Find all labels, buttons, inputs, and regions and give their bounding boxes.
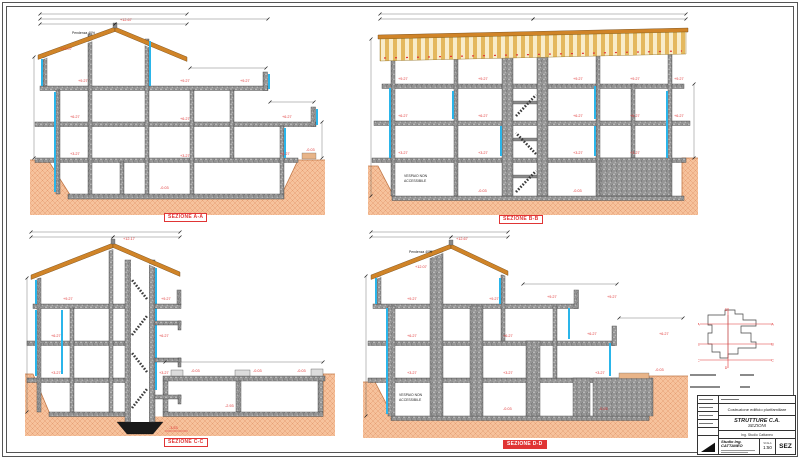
elevation-label: +9.27 xyxy=(161,297,171,301)
key-plan-legend-line xyxy=(690,374,716,376)
section-mark-letter: A xyxy=(771,323,774,327)
elevation-label: -0.03 xyxy=(297,369,306,373)
elevation-label: +3.27 xyxy=(630,151,640,155)
gravel-strip xyxy=(619,373,649,379)
annotation-text: ACCESSIBILE xyxy=(399,398,422,402)
section-d-drawing: +12.67+12.07+9.27+9.27+9.27+9.27+6.27+6.… xyxy=(363,226,688,452)
elevation-label: +3.27 xyxy=(573,151,583,155)
section-d-label: SEZIONE D-D xyxy=(503,440,547,449)
elevation-label: +12.67 xyxy=(120,18,132,22)
firm-row: Ing. Studio Cattaneo xyxy=(719,431,795,439)
elevation-label: +9.27 xyxy=(630,77,640,81)
elevation-label: +3.27 xyxy=(398,151,408,155)
elevation-label: +3.27 xyxy=(70,152,80,156)
elevation-label: -3.53 xyxy=(169,426,178,430)
elevation-label: -0.03 xyxy=(599,407,608,411)
drawing-subtitle: SEZIONI xyxy=(748,424,766,429)
elevation-label: +9.27 xyxy=(674,77,684,81)
title-block-header-row xyxy=(719,396,795,404)
elevation-label: +3.27 xyxy=(180,154,190,158)
section-c-drawing: +12.17+9.27+9.27+6.27+6.27+3.27+3.27-0.0… xyxy=(25,226,335,452)
elevation-label: +6.27 xyxy=(674,114,684,118)
elevation-label: +3.27 xyxy=(407,371,417,375)
elevation-label: -0.03 xyxy=(306,148,315,152)
scale-value: 1:50 xyxy=(763,445,772,450)
elevation-label: +6.27 xyxy=(159,334,169,338)
key-plan-outline xyxy=(708,310,756,358)
elevation-label: +9.27 xyxy=(607,295,617,299)
annotation-text: VESPAIO NON xyxy=(404,174,428,178)
section-mark-letter: D xyxy=(725,366,728,370)
elevation-label: +6.27 xyxy=(70,115,80,119)
elevation-label: +6.27 xyxy=(503,334,513,338)
elevation-label: +6.27 xyxy=(573,114,583,118)
annotation-text: Pendenza 40% xyxy=(72,31,95,35)
elevation-label: +6.27 xyxy=(478,114,488,118)
section-a-label: SEZIONE A-A xyxy=(164,213,207,222)
section-mark-letter: B xyxy=(771,343,774,347)
elevation-label: +9.27 xyxy=(573,77,583,81)
elevation-label: -0.03 xyxy=(160,186,169,190)
elevation-label: -0.03 xyxy=(503,407,512,411)
section-mark-letter: A xyxy=(698,323,700,327)
elevation-label: +9.27 xyxy=(240,79,250,83)
drawing-title-cell: STRUTTURE C.A. SEZIONI xyxy=(719,416,795,431)
roof-left-slope xyxy=(31,243,113,280)
gravel-strip xyxy=(302,153,316,159)
elevation-label: +3.27 xyxy=(595,371,605,375)
elevation-label: +6.27 xyxy=(407,334,417,338)
elevation-label: +6.27 xyxy=(630,114,640,118)
firm-cell: Studio Ing. CATTANEO xyxy=(719,439,760,454)
ridge-cap xyxy=(111,239,115,244)
section-mark-letter: C xyxy=(771,359,774,363)
elevation-label: +9.27 xyxy=(398,77,408,81)
elevation-label: +9.27 xyxy=(407,297,417,301)
elevation-label: -0.03 xyxy=(655,368,664,372)
key-plan: AABBCCDD xyxy=(698,306,774,370)
title-block: Costruzione edificio plurifamiliare STRU… xyxy=(697,395,796,455)
key-plan-legend-line xyxy=(740,374,754,376)
ridge-cap xyxy=(449,240,453,245)
elevation-label: +12.07 xyxy=(60,47,72,51)
section-b-label: SEZIONE B-B xyxy=(499,215,543,224)
elevation-label: -0.03 xyxy=(253,369,262,373)
elevation-label: +3.27 xyxy=(159,371,169,375)
elevation-label: +6.27 xyxy=(659,332,669,336)
elevation-label: -0.03 xyxy=(191,369,200,373)
section-a-drawing: +12.67+12.07+9.27+9.27+9.27+6.27+6.27+6.… xyxy=(30,8,325,223)
elevation-label: +9.27 xyxy=(63,297,73,301)
elevation-label: +12.67 xyxy=(456,237,468,241)
elevation-label: +3.27 xyxy=(51,371,61,375)
section-c-label: SEZIONE C-C xyxy=(164,438,208,447)
triangle-logo-icon xyxy=(701,441,715,452)
project-name: Costruzione edificio plurifamiliare xyxy=(719,404,795,416)
roof-right-slope xyxy=(451,244,508,276)
elevation-label: +9.27 xyxy=(78,79,88,83)
elevation-label: +12.17 xyxy=(123,237,135,241)
section-mark-letter: B xyxy=(698,343,700,347)
scale-cell: SCALA 1:50 xyxy=(760,439,776,454)
elevation-label: +6.27 xyxy=(587,332,597,336)
firm-logo xyxy=(698,436,718,454)
section-b-drawing: +9.27+9.27+9.27+9.27+9.27+6.27+6.27+6.27… xyxy=(368,8,698,223)
elevation-label: +6.27 xyxy=(51,334,61,338)
elevation-label: +6.27 xyxy=(398,114,408,118)
elevation-label: +9.27 xyxy=(489,297,499,301)
elevation-label: -0.03 xyxy=(573,189,582,193)
key-plan-legend-line xyxy=(740,386,750,388)
drawing-code: SEZ xyxy=(776,439,795,454)
stairs xyxy=(513,95,537,192)
elevation-label: +6.27 xyxy=(180,117,190,121)
elevation-label: -0.03 xyxy=(478,189,487,193)
drawing-sheet: +12.67+12.07+9.27+9.27+9.27+6.27+6.27+6.… xyxy=(0,0,800,459)
elevation-label: -2.93 xyxy=(225,404,234,408)
annotation-text: VESPAIO NON xyxy=(399,393,423,397)
elevation-label: +9.27 xyxy=(180,79,190,83)
section-mark-letter: C xyxy=(698,359,700,363)
elevation-label: +9.27 xyxy=(547,295,557,299)
elevation-label: +3.27 xyxy=(478,151,488,155)
key-plan-legend-line xyxy=(690,386,720,388)
annotation-text: ACCESSIBILE xyxy=(404,179,427,183)
firm-name: Studio Ing. CATTANEO xyxy=(721,440,757,449)
elevation-label: +6.27 xyxy=(282,115,292,119)
elevation-label: +3.27 xyxy=(280,152,290,156)
annotation-text: Pendenza 40% xyxy=(409,250,432,254)
elevation-label: +9.27 xyxy=(478,77,488,81)
elevation-label: +3.27 xyxy=(503,371,513,375)
elevation-label: +12.07 xyxy=(415,265,427,269)
revision-table xyxy=(698,396,719,454)
